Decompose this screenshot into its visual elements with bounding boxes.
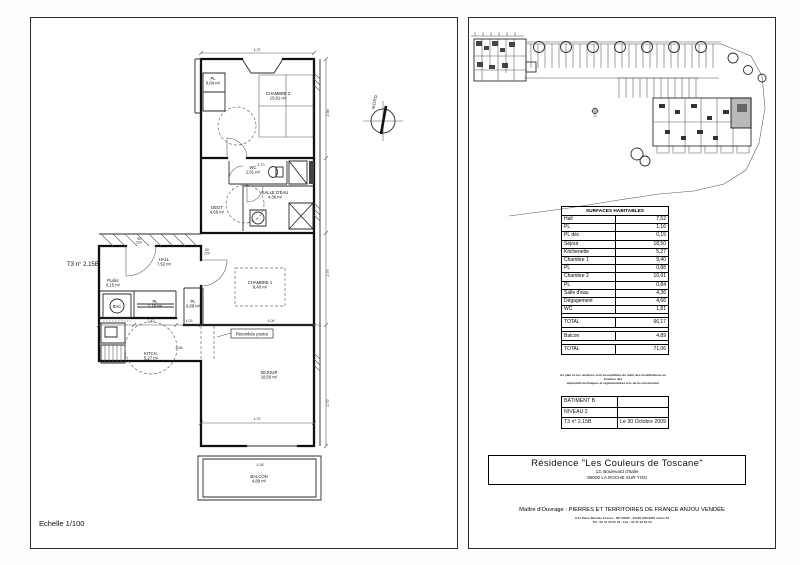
plan-sheet-page: { "document": { "scale_label": "Echelle … <box>0 0 800 565</box>
lamp-icon <box>591 107 599 116</box>
floorplan-svg: Retombée poutre NORD CHAMBRE 210,91 m²PL… <box>31 18 457 548</box>
dimension-label: 2,88 <box>176 346 183 350</box>
table-row: Hall7,52 <box>562 216 669 224</box>
shaft-fill <box>309 161 314 184</box>
parking-top <box>524 42 721 78</box>
owner-contact: 9-11 Place Mendès France - BP 20535 - 49… <box>469 517 775 525</box>
dimension-label: 4,38 <box>257 463 264 467</box>
site-plan-svg <box>469 18 775 230</box>
building-b <box>653 98 751 153</box>
unit-label: T3 n° 2.15B <box>67 262 99 268</box>
dimension-label: 2,79 <box>326 270 330 277</box>
room-label: PL0,88 m² <box>186 299 201 309</box>
partitions <box>99 59 321 500</box>
room-label: BALCON4,89 m² <box>250 474 267 484</box>
scale-label: Echelle 1/100 <box>39 519 84 528</box>
room-label: SEJOUR18,50 m² <box>261 370 278 380</box>
room-label: CHAMBRE 210,91 m² <box>266 91 291 101</box>
dimension-label: 220 <box>136 241 142 245</box>
room-label: PL0,84 m² <box>206 76 221 86</box>
dimension-label: 2,70 <box>326 400 330 407</box>
room-label: BAC <box>113 304 122 309</box>
cartouche-date: Le 30 Octobre 2009 <box>618 418 669 429</box>
table-row: Kitchenette5,27 <box>562 248 669 256</box>
dimension-label: 4,70 <box>254 48 261 52</box>
shower-symbol <box>289 203 313 229</box>
disclaimer-note: Ce plan et ces surfaces sont susceptible… <box>555 374 671 386</box>
table-row: Salle d'eau4,36 <box>562 289 669 297</box>
cartouche-table: BÂTIMENT B NIVEAU 2 T3 n° 2.15B Le 30 Oc… <box>561 396 669 429</box>
unit-highlight <box>731 98 751 128</box>
plan-labels: CHAMBRE 210,91 m²PL0,84 m²WC1,81 m²SALLE… <box>106 48 330 484</box>
table-row: Chambre 210,91 <box>562 273 669 281</box>
residence-title: Résidence "Les Couleurs de Toscane" <box>489 458 745 469</box>
table-row: TOTAL66,17 <box>562 318 669 328</box>
parking-middle <box>617 78 699 98</box>
residence-address2: 85000 LA ROCHE SUR YON <box>489 475 745 481</box>
north-label: NORD <box>371 94 379 109</box>
wall-hatching <box>101 73 320 371</box>
cartouche-batiment: BÂTIMENT B <box>562 397 618 408</box>
surfaces-table: SURFACES HABITABLES Hall7,52PL1,16PL déc… <box>561 206 669 355</box>
room-label: PLdéc0,15 m² <box>106 278 121 288</box>
surfaces-table-container: SURFACES HABITABLES Hall7,52PL1,16PL déc… <box>561 206 669 355</box>
room-label: DEGT4,66 m² <box>210 205 225 215</box>
cartouche-cell-empty2 <box>618 407 669 418</box>
dimension-label: 1,03 <box>186 319 193 323</box>
dimension-label: 220 <box>204 252 210 256</box>
info-sheet: SURFACES HABITABLES Hall7,52PL1,16PL déc… <box>468 17 776 549</box>
cartouche-unit: T3 n° 2.15B <box>562 418 618 429</box>
table-row: Dégagement4,66 <box>562 297 669 305</box>
table-row: Chambre 19,40 <box>562 256 669 264</box>
table-row: TOTAL71,06 <box>562 345 669 355</box>
table-row: PL1,16 <box>562 224 669 232</box>
table-row: Séjour18,50 <box>562 240 669 248</box>
room-label: HALL7,52 m² <box>157 257 172 267</box>
dimension-label: 4,06 <box>268 319 275 323</box>
table-row: PL0,84 <box>562 281 669 289</box>
room-label: KITCH.5,27 m² <box>144 351 159 361</box>
building-a <box>471 32 536 81</box>
floorplan-sheet: Retombée poutre NORD CHAMBRE 210,91 m²PL… <box>30 17 458 549</box>
north-compass-icon: NORD <box>363 94 403 141</box>
disclaimer-line2: impératifs techniques et réglementaires … <box>555 382 671 386</box>
dimension-label: 4,70 <box>258 163 265 167</box>
room-label: SALLE D'EAU4,36 m² <box>262 190 289 200</box>
beam-callout-label: Retombée poutre <box>236 332 269 337</box>
table-row: Balcon4,89 <box>562 331 669 341</box>
cartouche-container: BÂTIMENT B NIVEAU 2 T3 n° 2.15B Le 30 Oc… <box>561 396 669 429</box>
cartouche-cell-empty1 <box>618 397 669 408</box>
beam-callout: Retombée poutre <box>217 329 273 338</box>
dimension-label: 4,70 <box>254 417 261 421</box>
dimension-label: 2,43 <box>148 319 155 323</box>
bed-symbol <box>259 75 313 137</box>
table-row: PL déc0,15 <box>562 232 669 240</box>
kitchen-fixtures <box>101 323 125 363</box>
surfaces-table-title: SURFACES HABITABLES <box>562 207 669 216</box>
site-boundary <box>509 44 765 216</box>
table-row: WC1,81 <box>562 306 669 314</box>
owner-phone: Tél : 02 41 23 52 52 - Fax : 02 41 23 52… <box>469 521 775 525</box>
door-arcs <box>126 138 263 286</box>
table-row: PL0,88 <box>562 265 669 273</box>
title-block: Résidence "Les Couleurs de Toscane" 13, … <box>488 455 746 485</box>
room-label: PL1,16 m² <box>148 299 163 309</box>
dimension-label: 2,98 <box>326 110 330 117</box>
owner-label: Maître d'Ouvrage : PIERRES ET TERRITOIRE… <box>469 507 775 513</box>
cartouche-niveau: NIVEAU 2 <box>562 407 618 418</box>
room-label: CHAMBRE 19,40 m² <box>248 280 273 290</box>
